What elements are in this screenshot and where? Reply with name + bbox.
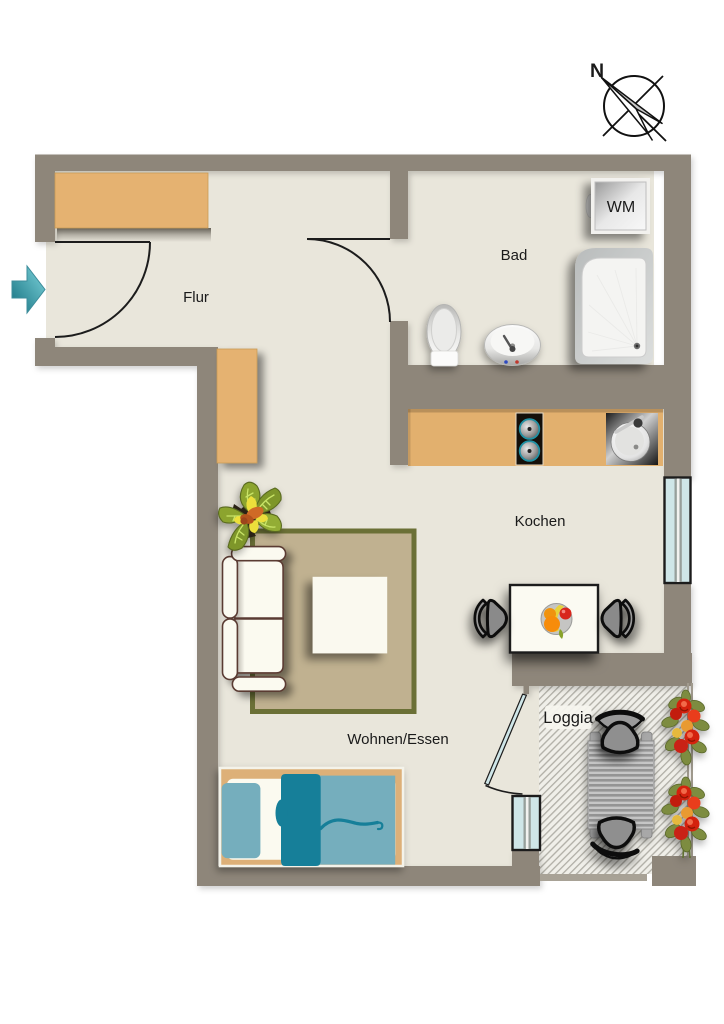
svg-text:Loggia: Loggia	[543, 709, 593, 727]
svg-text:Kochen: Kochen	[515, 513, 566, 530]
svg-text:Bad: Bad	[501, 247, 528, 264]
svg-text:Wohnen/Essen: Wohnen/Essen	[347, 731, 448, 748]
svg-text:N: N	[590, 60, 604, 82]
svg-text:Flur: Flur	[183, 289, 209, 306]
svg-text:WM: WM	[607, 199, 635, 216]
